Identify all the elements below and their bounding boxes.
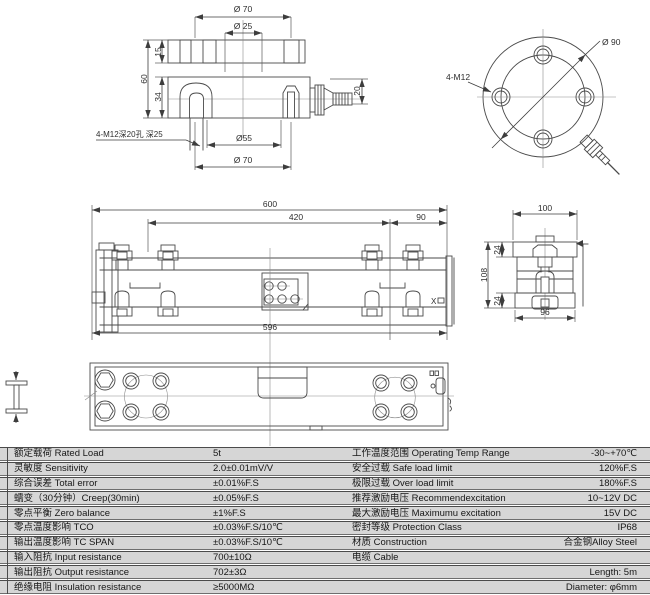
table-row: 额定载荷 Rated Load 5t 工作温度范围 Operating Temp… [0, 447, 650, 461]
dim-label-dia55: Ø55 [236, 133, 252, 143]
top-view-drawing: Ø 90 4-M12 [446, 29, 624, 179]
spec-value-right: Length: 5m [549, 567, 650, 578]
plan-view-drawing [6, 363, 454, 430]
spec-value-right: Diameter: φ6mm [549, 582, 650, 593]
spec-value-left: 702±3Ω [213, 567, 337, 578]
spec-value-right: 合金钢Alloy Steel [549, 537, 650, 548]
junction-box [262, 273, 308, 310]
table-row: 综合误差 Total error ±0.01%F.S 极限过载 Over loa… [0, 477, 650, 491]
dim-label-420: 420 [289, 212, 303, 222]
section-view-drawing: Ø 70 Ø 25 15 60 34 20 Ø55 Ø 70 4- [96, 4, 368, 170]
table-row: 蠕变（30分钟）Creep(30min) ±0.05%F.S 推荐激励电压 Re… [0, 491, 650, 505]
bolt-spec-label: 4-M12 [446, 72, 470, 82]
spec-value-left: ±1%F.S [213, 508, 337, 519]
spec-label-left: 综合误差 Total error [0, 478, 213, 489]
spec-label-left: 零点平衡 Zero balance [0, 508, 213, 519]
end-view-drawing: 100 24 108 24 96 [479, 203, 588, 322]
dim-label-34: 34 [153, 92, 163, 102]
dim-label-dia90: Ø 90 [602, 37, 621, 47]
spec-label-right: 密封等级 Protection Class [337, 522, 549, 533]
spec-value-left: 700±10Ω [213, 552, 337, 563]
dim-label-100: 100 [538, 203, 552, 213]
dim-label-dia70-top: Ø 70 [234, 4, 253, 14]
table-row: 零点温度影响 TCO ±0.03%F.S/10℃ 密封等级 Protection… [0, 521, 650, 535]
i-beam-symbol [6, 371, 27, 423]
dim-label-dia70-bottom: Ø 70 [234, 155, 253, 165]
spec-table: 额定载荷 Rated Load 5t 工作温度范围 Operating Temp… [0, 447, 650, 595]
table-left-rule [7, 448, 8, 594]
spec-label-left: 零点温度影响 TCO [0, 522, 213, 533]
dim-label-90: 90 [416, 212, 426, 222]
spec-value-right: 180%F.S [549, 478, 650, 489]
dim-label-96: 96 [540, 307, 550, 317]
dim-label-15: 15 [153, 47, 163, 57]
junction-box-plan [258, 367, 307, 398]
spec-label-left: 输入阻抗 Input resistance [0, 552, 213, 563]
table-row: 灵敏度 Sensitivity 2.0±0.01mV/V 安全过载 Safe l… [0, 462, 650, 476]
dim-label-dia25: Ø 25 [234, 21, 253, 31]
table-row: 零点平衡 Zero balance ±1%F.S 最大激励电压 Maximumu… [0, 506, 650, 520]
spec-label-left: 输出温度影响 TC SPAN [0, 537, 213, 548]
technical-drawings: Ø 70 Ø 25 15 60 34 20 Ø55 Ø 70 4- [0, 0, 650, 447]
spec-value-right: 15V DC [549, 508, 650, 519]
dim-label-24-top: 24 [492, 245, 502, 255]
spec-value-right: 10~12V DC [549, 493, 650, 504]
table-row: 输入阻抗 Input resistance 700±10Ω 电缆 Cable [0, 551, 650, 565]
spec-value-right: IP68 [549, 522, 650, 533]
spec-label-right: 最大激励电压 Maximumu excitation [337, 508, 549, 519]
spec-value-left: ±0.03%F.S/10℃ [213, 522, 337, 533]
spec-label-left: 蠕变（30分钟）Creep(30min) [0, 493, 213, 504]
side-view-drawing: 600 420 90 596 X [92, 199, 454, 446]
spec-label-left: 绝缘电阻 Insulation resistance [0, 582, 213, 593]
spec-value-left: 2.0±0.01mV/V [213, 463, 337, 474]
holes-note-label: 4-M12深20孔 深25 [96, 130, 163, 139]
table-row: 绝缘电阻 Insulation resistance ≥5000MΩ Diame… [0, 580, 650, 594]
spec-value-left: ±0.03%F.S/10℃ [213, 537, 337, 548]
dim-label-60: 60 [139, 74, 149, 84]
spec-label-left: 输出阻抗 Output resistance [0, 567, 213, 578]
spec-label-right: 电缆 Cable [337, 552, 549, 563]
table-row: 输出阻抗 Output resistance 702±3Ω Length: 5m [0, 565, 650, 579]
dim-label-20: 20 [352, 86, 362, 96]
spec-label-right: 极限过载 Over load limit [337, 478, 549, 489]
x-marker-label: X [431, 297, 437, 306]
spec-value-left: ±0.05%F.S [213, 493, 337, 504]
spec-value-right: -30~+70℃ [549, 448, 650, 459]
spec-label-left: 额定载荷 Rated Load [0, 448, 213, 459]
spec-label-right: 推荐激励电压 Recommendexcitation [337, 493, 549, 504]
load-cell-datasheet: Ø 70 Ø 25 15 60 34 20 Ø55 Ø 70 4- [0, 0, 650, 595]
spec-label-right: 工作温度范围 Operating Temp Range [337, 448, 549, 459]
spec-label-left: 灵敏度 Sensitivity [0, 463, 213, 474]
bolt-group-right [373, 375, 417, 420]
spec-value-right: 120%F.S [549, 463, 650, 474]
spec-label-right: 安全过载 Safe load limit [337, 463, 549, 474]
spec-value-left: ≥5000MΩ [213, 582, 337, 593]
bolt-group-left [123, 373, 169, 420]
hex-bolts [95, 370, 115, 421]
spec-value-left: 5t [213, 448, 337, 459]
dim-label-600: 600 [263, 199, 277, 209]
dim-label-24-bottom: 24 [492, 296, 502, 306]
table-row: 输出温度影响 TC SPAN ±0.03%F.S/10℃ 材质 Construc… [0, 536, 650, 550]
spec-value-left: ±0.01%F.S [213, 478, 337, 489]
spec-label-right: 材质 Construction [337, 537, 549, 548]
dim-label-596: 596 [263, 322, 277, 332]
cable-gland [579, 134, 624, 179]
dim-label-108: 108 [479, 268, 489, 282]
